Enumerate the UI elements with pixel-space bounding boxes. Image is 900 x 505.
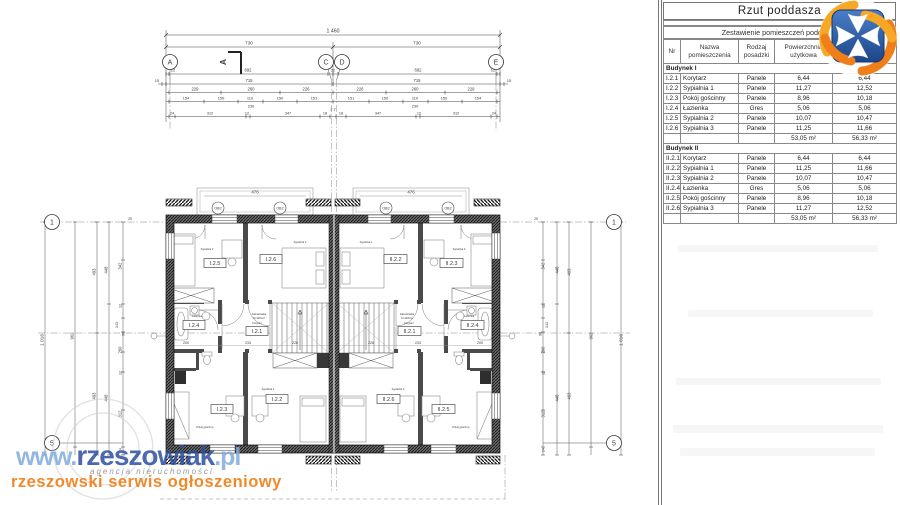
logo-rzeszowiak [817, 0, 900, 79]
svg-text:493: 493 [567, 268, 572, 276]
dim-label: 476 [251, 190, 259, 195]
svg-text:Sypialnia 3: Sypialnia 3 [392, 387, 405, 391]
svg-text:448: 448 [104, 394, 109, 402]
dim-label: 230 [248, 104, 255, 109]
svg-text:h=110cm: h=110cm [401, 316, 414, 320]
svg-text:260: 260 [118, 346, 123, 354]
table-row: II.2.5Pokój gościnnyPanele8,9610,18 [664, 194, 897, 204]
dim-label: 150 [277, 95, 284, 100]
grid-bubble-1: 1 [612, 220, 616, 227]
svg-text:493: 493 [92, 392, 97, 400]
table-row: I.2.5Sypialnia 2Panele10,0710,47 [664, 114, 897, 124]
room-label: I.2.4 [189, 323, 200, 329]
room-label: II.2.1 [404, 329, 416, 335]
svg-text:Korytarz: Korytarz [404, 321, 414, 325]
svg-text:12: 12 [542, 304, 546, 308]
dim-label: 347 [375, 111, 381, 115]
dim-label: 154 [475, 95, 482, 100]
svg-text:Sypialnia 3: Sypialnia 3 [294, 240, 307, 244]
faint-print-band [676, 378, 881, 385]
ob2-label: OB2 [214, 206, 221, 210]
dim-label: 1 460 [327, 29, 340, 35]
dim-label: 15 [507, 78, 512, 83]
svg-text:Sypialnia 2: Sypialnia 2 [201, 247, 214, 251]
dim-label: 151 [348, 95, 355, 100]
dim-label: 18 [339, 111, 343, 115]
dim-label: 150 [218, 95, 225, 100]
svg-text:233: 233 [245, 341, 251, 345]
table-row: II.2.4ŁazienkaGres5,065,06 [664, 184, 897, 194]
grid-bubble-a: A [168, 60, 173, 67]
dim-label: 2 2 [330, 108, 335, 112]
svg-text:200: 200 [477, 341, 483, 345]
room-label: II.2.2 [390, 257, 402, 263]
svg-text:342: 342 [118, 262, 123, 270]
dim-label: 260 [412, 86, 420, 91]
svg-text:90: 90 [122, 332, 126, 336]
grid-bubble-5: 5 [612, 441, 616, 448]
dim-label: 110 [247, 95, 254, 100]
watermark: www.rzeszowiak.pl agencja nieruchomości … [0, 428, 430, 505]
svg-text:1 016: 1 016 [619, 334, 625, 346]
dimension-block-top: 1 460 730 730 12 692 22 692 12 15 715 71… [155, 29, 512, 123]
svg-text:226: 226 [292, 341, 298, 345]
rzeszow-crest-icon [817, 0, 900, 79]
col-header-nr: Nr [664, 40, 681, 64]
svg-text:12: 12 [542, 371, 546, 375]
ob2-label: OB2 [276, 206, 283, 210]
svg-text:90: 90 [539, 332, 543, 336]
grid-bubble-e: E [494, 60, 499, 67]
svg-text:Korytarz: Korytarz [252, 321, 262, 325]
col-header-name: Nazwa pomieszczenia [681, 40, 739, 64]
svg-text:962: 962 [589, 332, 594, 340]
watermark-tagline: rzeszowski serwis ogłoszeniowy [11, 473, 282, 492]
dim-label: 260 [248, 86, 256, 91]
table-row: I.2.6Sypialnia 3Panele11,2511,66 [664, 124, 897, 134]
svg-text:1 016: 1 016 [40, 334, 46, 346]
room-label: II.2.6 [383, 397, 395, 403]
dim-label: 12 [417, 111, 421, 115]
ob2-label: OB2 [382, 206, 389, 210]
dim-label: 692 [415, 68, 423, 73]
svg-text:h=110cm: h=110cm [253, 316, 266, 320]
faint-print-band [688, 310, 873, 317]
table-row: I.2.3Pokój gościnnyPanele8,9610,18 [664, 94, 897, 104]
svg-text:Sypialnia 1: Sypialnia 1 [360, 240, 373, 244]
room-label: I.2.3 [217, 407, 228, 413]
svg-text:12: 12 [119, 371, 123, 375]
table-row: I.2.4ŁazienkaGres5,065,06 [664, 104, 897, 114]
dim-label: 150 [441, 95, 448, 100]
table-row: I.2.2Sypialnia 1Panele11,2712,52 [664, 84, 897, 94]
room-label: I.2.1 [252, 329, 263, 335]
svg-text:962: 962 [70, 332, 75, 340]
dim-label: 230 [412, 104, 419, 109]
grid-bubble-d: D [339, 60, 344, 67]
dim-label: 24 [170, 111, 174, 115]
table-row: II.2.1KorytarzPanele6,446,44 [664, 154, 897, 164]
dim-label: 312 [453, 111, 459, 115]
floor-plan-screenshot: 1 460 730 730 12 692 22 692 12 15 715 71… [0, 0, 900, 505]
dim-label: 730 [413, 41, 421, 46]
svg-text:312: 312 [541, 410, 546, 418]
svg-text:Sypialnia 1: Sypialnia 1 [262, 387, 275, 391]
dim-label: 730 [245, 41, 253, 46]
dim-label: 18 [323, 111, 327, 115]
faint-print-band [680, 448, 875, 456]
dim-label: 110 [412, 95, 419, 100]
grid-bubble-c: C [323, 60, 328, 67]
dim-label: 347 [285, 111, 291, 115]
faint-print-band [678, 245, 878, 252]
dim-label: 151 [311, 95, 318, 100]
svg-text:260: 260 [541, 346, 546, 354]
dim-label: 692 [245, 68, 253, 73]
svg-text:448: 448 [555, 266, 560, 274]
dim-label: 229 [468, 86, 476, 91]
svg-text:Sypialnia 2: Sypialnia 2 [453, 247, 466, 251]
svg-text:Pokój gościnny: Pokój gościnny [452, 425, 470, 429]
svg-text:Łazienka: Łazienka [192, 314, 203, 318]
dim-label: 715 [246, 78, 254, 83]
unit-left [151, 188, 331, 464]
room-label: I.2.2 [272, 397, 283, 403]
svg-text:493: 493 [567, 392, 572, 400]
faint-print-band [673, 425, 883, 433]
watermark-www: www. [16, 443, 76, 471]
sum-row: 53,05 m²56,33 m² [664, 134, 897, 144]
room-label: I.2.5 [210, 261, 221, 267]
svg-text:448: 448 [104, 266, 109, 274]
sum-row: 53,05 m²56,33 m² [664, 214, 897, 224]
table-row: II.2.6Sypialnia 3Panele11,2712,52 [664, 204, 897, 214]
table-row: II.2.3Sypialnia 2Panele10,0710,47 [664, 174, 897, 184]
svg-text:143: 143 [115, 322, 119, 328]
room-label: I.2.6 [266, 257, 277, 263]
svg-text:143: 143 [545, 322, 549, 328]
dimension-block-left: 1 5 1 016 962 493 493 448 448 342 12 143… [40, 215, 167, 456]
dim-label: 150 [382, 95, 389, 100]
roof-window-labels: OB2 OB2 OB2 OB2 476 476 [214, 190, 451, 211]
table-row: II.2.2Sypialnia 1Panele11,2511,66 [664, 164, 897, 174]
dim-label: 476 [407, 190, 415, 195]
section-band: Budynek II [664, 144, 897, 154]
grid-bubble-1: 1 [50, 220, 54, 227]
svg-text:493: 493 [92, 268, 97, 276]
svg-text:233: 233 [415, 341, 421, 345]
room-label: II.2.4 [467, 323, 479, 329]
dim-label: 15 [155, 78, 160, 83]
dim-label: 24 [492, 111, 496, 115]
unit-right [335, 188, 515, 464]
dim-label: 22 [331, 68, 336, 73]
svg-text:226: 226 [368, 341, 374, 345]
svg-text:342: 342 [541, 262, 546, 270]
watermark-tld: .pl [214, 443, 240, 471]
room-label: II.2.5 [438, 407, 450, 413]
section-marker-label: A [218, 59, 228, 65]
panel-border-inner [661, 0, 662, 505]
svg-text:Łazienka: Łazienka [464, 314, 475, 318]
svg-text:24: 24 [542, 448, 546, 452]
building-walls [166, 215, 500, 453]
section-marker: A [218, 52, 241, 74]
dim-label: 229 [192, 86, 200, 91]
svg-text:12: 12 [119, 304, 123, 308]
dim-label: 12 [245, 111, 249, 115]
svg-text:25: 25 [534, 217, 538, 221]
dim-label: 226 [303, 86, 311, 91]
svg-text:448: 448 [555, 394, 560, 402]
room-label: II.2.3 [446, 261, 458, 267]
dimension-block-right: 1 5 1 016 962 493 493 448 448 342 12 143… [500, 215, 626, 456]
ob2-label: OB2 [444, 206, 451, 210]
dim-label: 226 [357, 86, 365, 91]
dim-label: 715 [414, 78, 422, 83]
dim-label: 154 [183, 95, 190, 100]
dim-label: 312 [207, 111, 213, 115]
svg-text:25: 25 [128, 217, 132, 221]
panel-border-outer [658, 0, 659, 505]
col-header-floor: Rodzaj posadzki [739, 40, 775, 64]
svg-text:200: 200 [183, 341, 189, 345]
